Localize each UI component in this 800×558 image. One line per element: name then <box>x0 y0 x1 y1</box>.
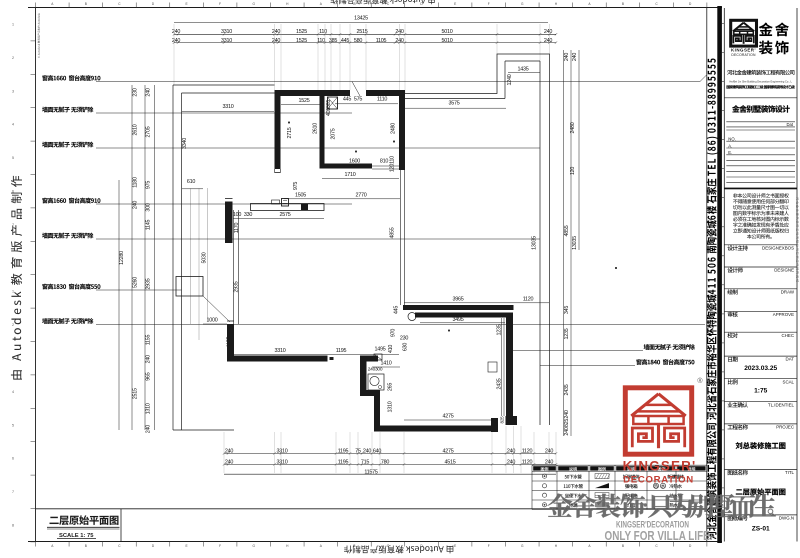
svg-text:F: F <box>219 544 221 548</box>
svg-text:1105: 1105 <box>376 38 387 44</box>
svg-text:DRAW: DRAW <box>781 289 795 294</box>
svg-text:410: 410 <box>388 345 394 353</box>
svg-text:3310: 3310 <box>221 38 232 44</box>
svg-text:1170: 1170 <box>234 222 240 233</box>
svg-text:2770: 2770 <box>356 192 367 198</box>
svg-text:4515: 4515 <box>445 460 456 466</box>
svg-text:1310: 1310 <box>146 403 152 414</box>
svg-text:240: 240 <box>507 449 515 455</box>
svg-text:630: 630 <box>403 343 409 351</box>
svg-text:965: 965 <box>146 372 152 380</box>
svg-text:1410: 1410 <box>381 361 392 367</box>
svg-text:2075: 2075 <box>331 128 337 139</box>
svg-text:12280: 12280 <box>119 251 125 265</box>
svg-text:7: 7 <box>12 490 14 494</box>
svg-text:3310: 3310 <box>221 29 232 35</box>
svg-text:4275: 4275 <box>443 414 454 420</box>
svg-text:240: 240 <box>363 449 371 455</box>
svg-text:240: 240 <box>272 38 280 44</box>
svg-text:975: 975 <box>293 182 299 190</box>
svg-text:ZS-01: ZS-01 <box>752 526 770 533</box>
svg-text:2610: 2610 <box>313 123 319 134</box>
svg-text:CHEC: CHEC <box>782 333 794 338</box>
svg-text:1195: 1195 <box>336 348 347 354</box>
svg-text:DESIGNEXBOS: DESIGNEXBOS <box>762 245 794 250</box>
svg-text:240: 240 <box>272 29 280 35</box>
svg-text:3340: 3340 <box>182 138 188 149</box>
svg-text:1180: 1180 <box>133 177 139 188</box>
svg-text:580: 580 <box>354 38 362 44</box>
svg-text:240: 240 <box>225 460 233 466</box>
svg-text:B: B <box>353 2 355 6</box>
svg-text:3965: 3965 <box>453 297 464 303</box>
svg-text:1525: 1525 <box>296 38 307 44</box>
svg-text:1: 1 <box>12 290 14 294</box>
svg-text:3495: 3495 <box>453 317 464 323</box>
svg-text:E: E <box>454 544 456 548</box>
svg-text:1310: 1310 <box>388 401 394 412</box>
svg-text:240: 240 <box>564 427 570 435</box>
svg-text:SCALE 1: 75: SCALE 1: 75 <box>59 533 94 539</box>
svg-text:1240: 1240 <box>507 74 513 85</box>
svg-text:2435: 2435 <box>564 384 570 395</box>
svg-text:4: 4 <box>12 123 14 127</box>
svg-text:5260: 5260 <box>133 277 139 288</box>
svg-text:1525: 1525 <box>299 98 310 104</box>
svg-text:4275: 4275 <box>443 449 454 455</box>
svg-text:110: 110 <box>317 38 325 44</box>
svg-text:110: 110 <box>319 29 327 35</box>
svg-text:B: B <box>85 2 87 6</box>
svg-text:240: 240 <box>133 201 139 209</box>
svg-text:TL.IDENTIEL: TL.IDENTIEL <box>768 402 795 407</box>
svg-text:13035: 13035 <box>572 236 578 250</box>
svg-text:2935: 2935 <box>146 278 152 289</box>
svg-text:825: 825 <box>564 419 570 427</box>
svg-text:B: B <box>622 544 624 548</box>
svg-text:KINGSER': KINGSER' <box>623 458 697 473</box>
svg-text:1710: 1710 <box>345 172 356 178</box>
svg-text:4855: 4855 <box>390 227 396 238</box>
svg-text:345: 345 <box>564 306 570 314</box>
svg-text:240: 240 <box>146 355 152 363</box>
svg-text:2705: 2705 <box>146 126 152 137</box>
svg-text:1155: 1155 <box>146 334 152 345</box>
svg-text:240300: 240300 <box>368 367 383 373</box>
svg-text:3310: 3310 <box>223 104 234 110</box>
svg-text:1120: 1120 <box>522 460 533 466</box>
svg-text:240: 240 <box>564 410 570 418</box>
svg-text:100: 100 <box>233 212 241 218</box>
svg-text:TITL: TITL <box>785 470 795 475</box>
svg-text:1120: 1120 <box>523 297 534 303</box>
svg-text:240: 240 <box>146 88 152 96</box>
svg-text:265: 265 <box>388 383 394 391</box>
svg-text:4855: 4855 <box>564 225 570 236</box>
svg-text:®: ® <box>697 377 703 385</box>
svg-text:2: 2 <box>12 56 14 60</box>
svg-text:240: 240 <box>507 460 515 466</box>
svg-text:1195: 1195 <box>338 449 349 455</box>
svg-text:575: 575 <box>354 96 362 102</box>
svg-text:He/Bei Jin She Building Decora: He/Bei Jin She Building Decoration Engin… <box>729 80 792 84</box>
svg-text:5: 5 <box>12 156 14 160</box>
svg-text:1:75: 1:75 <box>754 387 768 394</box>
svg-text:780: 780 <box>381 460 389 466</box>
svg-text:1525: 1525 <box>296 29 307 35</box>
svg-text:825: 825 <box>500 416 505 424</box>
svg-text:3575: 3575 <box>449 101 460 107</box>
svg-text:KINGSER': KINGSER' <box>731 47 756 52</box>
svg-text:445: 445 <box>343 96 351 102</box>
svg-text:445: 445 <box>394 306 400 314</box>
svg-text:110: 110 <box>390 156 396 164</box>
svg-text:1120: 1120 <box>522 449 533 455</box>
svg-text:4: 4 <box>12 390 14 394</box>
svg-text:1505: 1505 <box>295 192 306 198</box>
svg-text:8: 8 <box>12 524 14 528</box>
svg-text:120: 120 <box>570 167 576 175</box>
svg-text:970: 970 <box>391 329 397 337</box>
svg-text:2515: 2515 <box>133 388 139 399</box>
svg-text:1145: 1145 <box>146 219 152 230</box>
svg-text:APPROVE: APPROVE <box>773 312 794 317</box>
svg-text:300: 300 <box>146 203 152 211</box>
svg-text:F: F <box>488 544 490 548</box>
svg-text:B: B <box>85 544 87 548</box>
svg-text:DECORATION: DECORATION <box>731 53 756 57</box>
svg-text:230: 230 <box>133 88 139 96</box>
svg-text:11575: 11575 <box>364 469 378 475</box>
svg-text:DECORATION: DECORATION <box>623 475 694 486</box>
svg-text:3: 3 <box>12 89 14 93</box>
svg-text:13035: 13035 <box>532 236 538 250</box>
svg-text:5030: 5030 <box>202 252 208 263</box>
svg-text:1495: 1495 <box>375 347 386 353</box>
svg-text:715: 715 <box>361 460 369 466</box>
svg-text:610: 610 <box>187 179 195 185</box>
svg-text:2575: 2575 <box>280 212 291 218</box>
svg-text:2: 2 <box>12 323 14 327</box>
svg-text:B: B <box>622 2 624 6</box>
svg-text:DESIGNE: DESIGNE <box>774 268 794 273</box>
svg-text:385: 385 <box>329 38 337 44</box>
svg-text:5010: 5010 <box>442 38 453 44</box>
svg-text:SCAL: SCAL <box>783 379 795 384</box>
svg-text:240: 240 <box>564 53 570 61</box>
svg-text:240: 240 <box>225 449 233 455</box>
svg-text:F: F <box>219 2 221 6</box>
svg-text:1235: 1235 <box>564 328 570 339</box>
svg-text:810: 810 <box>380 159 388 165</box>
svg-text:1195: 1195 <box>338 460 349 466</box>
svg-text:330: 330 <box>244 212 252 218</box>
svg-text:240: 240 <box>544 38 552 44</box>
svg-text:F: F <box>488 2 490 6</box>
svg-text:DAT: DAT <box>786 357 795 362</box>
svg-text:5010: 5010 <box>442 29 453 35</box>
svg-text:PROJEC: PROJEC <box>776 425 794 430</box>
svg-text:6: 6 <box>12 457 14 461</box>
svg-text:120: 120 <box>390 164 396 172</box>
svg-text:2715: 2715 <box>287 127 293 138</box>
svg-text:445: 445 <box>341 38 349 44</box>
svg-text:E: E <box>186 544 188 548</box>
svg-text:240: 240 <box>172 29 180 35</box>
svg-text:2480: 2480 <box>570 122 576 133</box>
svg-text:240: 240 <box>572 53 578 61</box>
svg-text:230: 230 <box>400 336 408 342</box>
svg-text:240: 240 <box>544 29 552 35</box>
svg-text:975: 975 <box>146 181 152 189</box>
svg-text:240: 240 <box>172 38 180 44</box>
svg-text:A.: A. <box>728 143 732 148</box>
svg-text:ONLY FOR VILLA LIFE.: ONLY FOR VILLA LIFE. <box>605 528 713 543</box>
svg-text:2480: 2480 <box>391 123 397 134</box>
svg-text:Dat: Dat <box>786 122 793 127</box>
svg-text:3310: 3310 <box>277 449 288 455</box>
svg-text:1435: 1435 <box>518 67 529 73</box>
svg-text:2610: 2610 <box>133 124 139 135</box>
svg-text:3310: 3310 <box>277 460 288 466</box>
svg-text:E: E <box>186 2 188 6</box>
svg-text:E.: E. <box>728 150 732 155</box>
svg-text:5: 5 <box>12 423 14 427</box>
svg-text:1000: 1000 <box>207 318 218 324</box>
svg-text:E: E <box>454 2 456 6</box>
svg-text:240: 240 <box>146 425 152 433</box>
svg-text:1: 1 <box>12 23 14 27</box>
svg-text:DWG.N: DWG.N <box>779 516 794 521</box>
svg-text:13425: 13425 <box>354 16 368 22</box>
svg-text:NO.: NO. <box>728 136 735 141</box>
svg-text:3310: 3310 <box>275 348 286 354</box>
svg-text:1110: 1110 <box>377 96 387 102</box>
svg-text:2023.03.25: 2023.03.25 <box>744 365 777 372</box>
